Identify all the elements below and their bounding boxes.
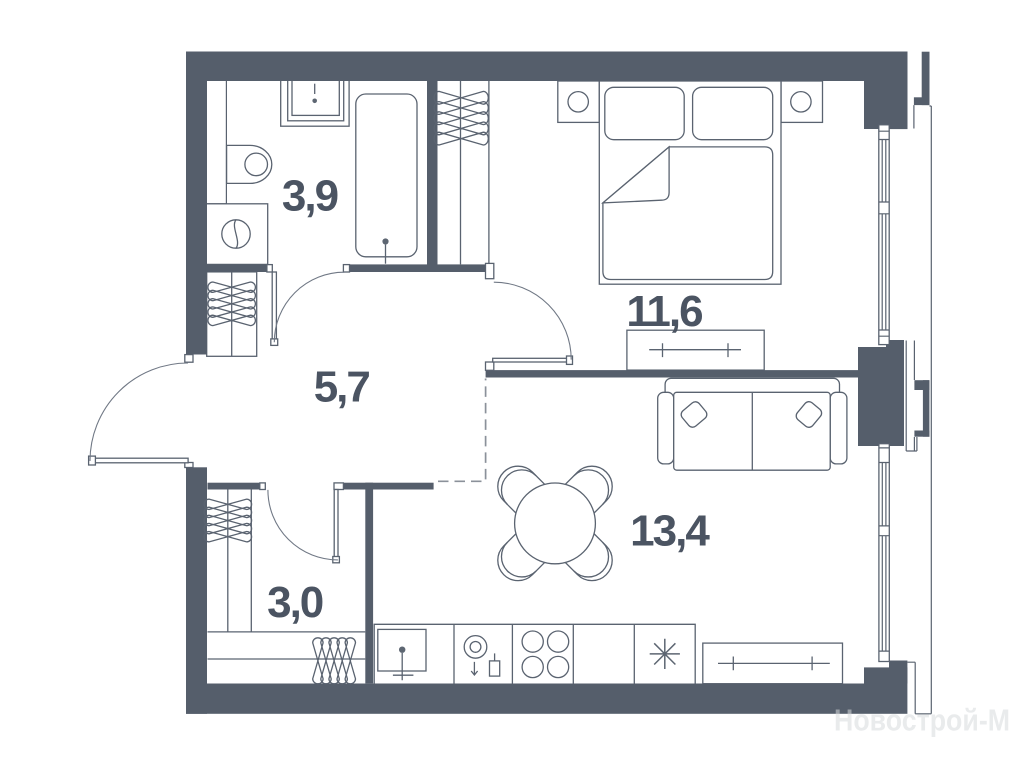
svg-text:Новострой-М: Новострой-М <box>834 703 1010 738</box>
svg-text:3,0: 3,0 <box>267 578 323 627</box>
svg-text:3,9: 3,9 <box>282 172 338 221</box>
svg-text:13,4: 13,4 <box>630 507 710 556</box>
svg-text:11,6: 11,6 <box>626 287 702 336</box>
svg-text:5,7: 5,7 <box>314 363 370 412</box>
